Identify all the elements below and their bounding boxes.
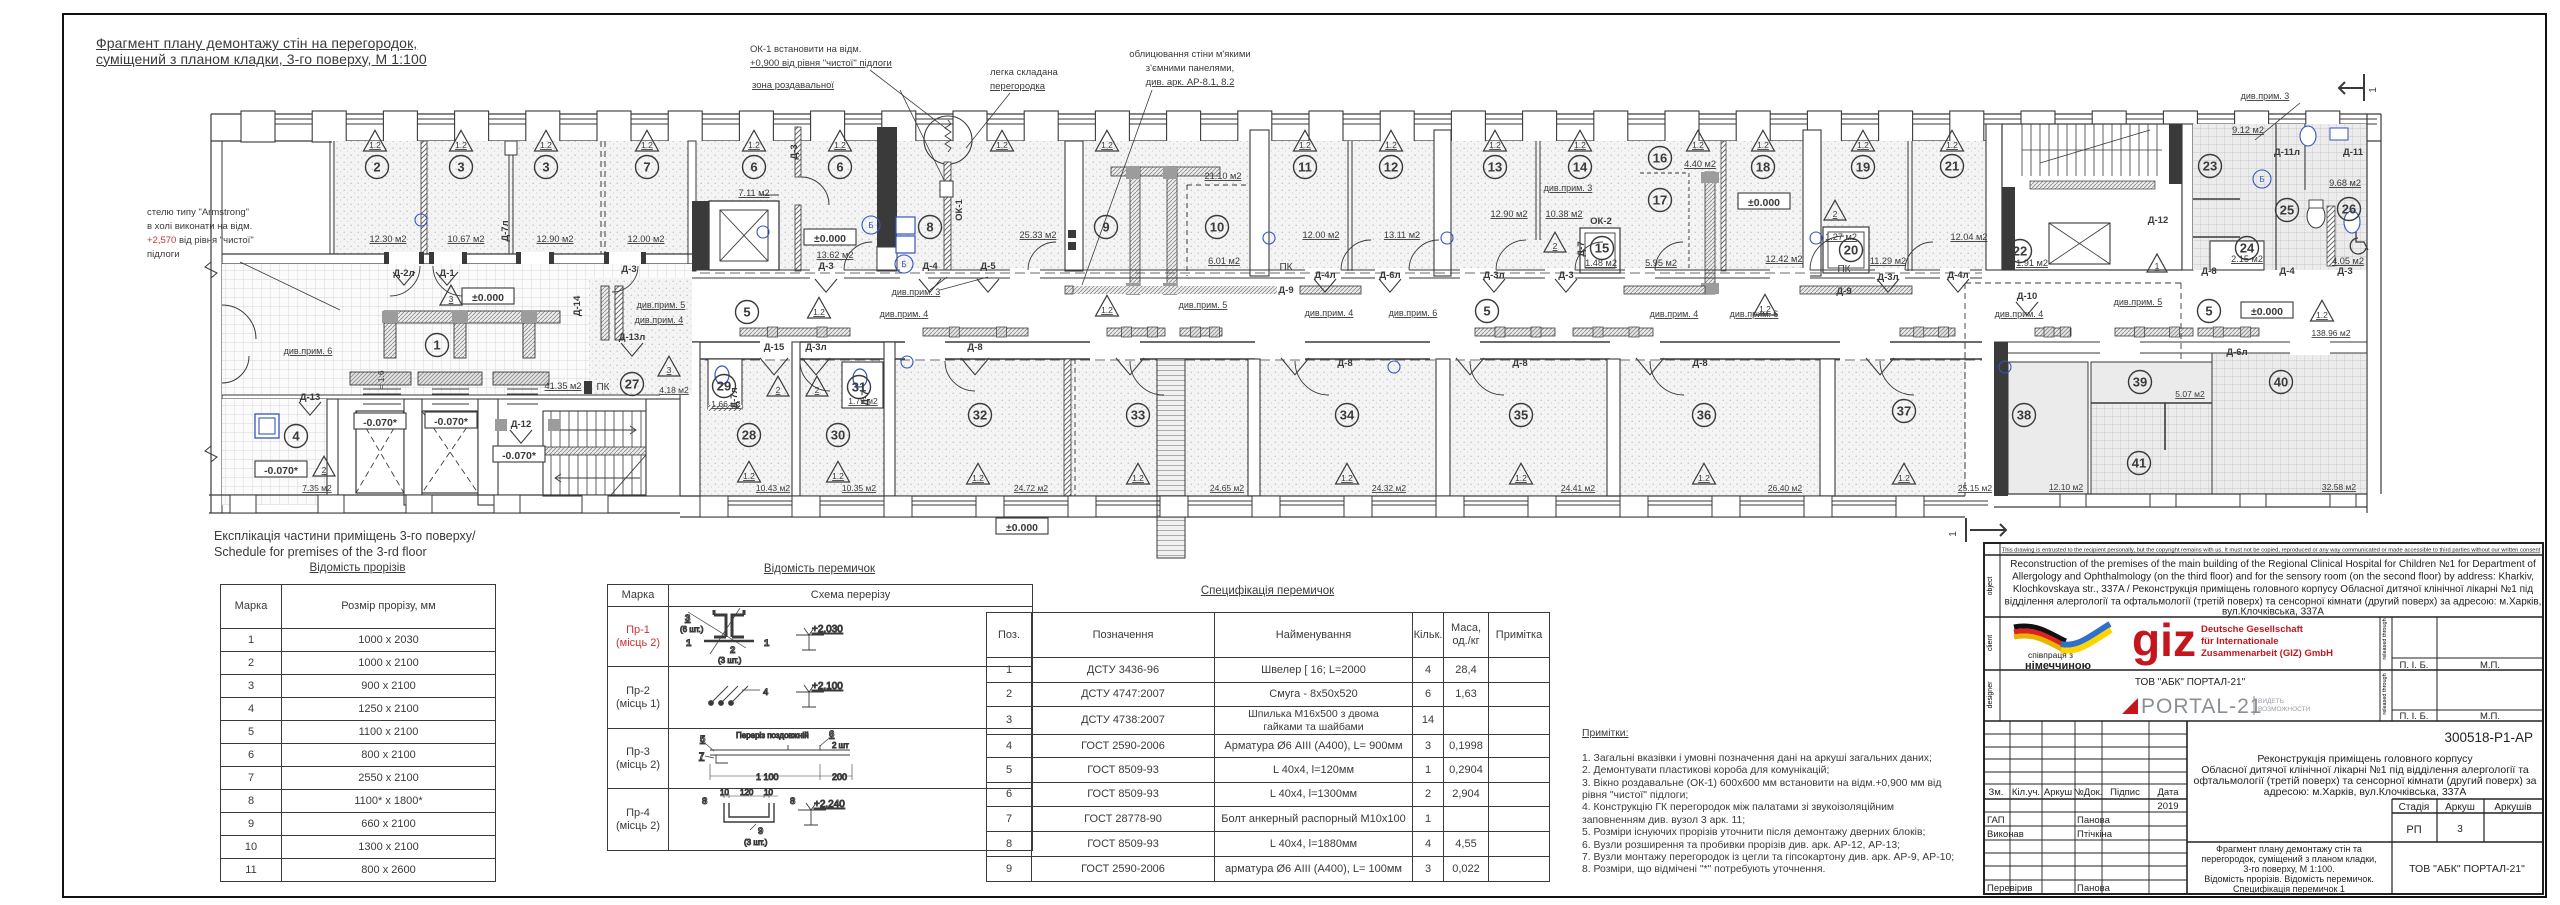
svg-text:2: 2: [1833, 209, 1838, 219]
svg-text:підлоги: підлоги: [147, 249, 180, 260]
svg-text:Д-2л: Д-2л: [393, 268, 414, 279]
svg-text:= 1:6: = 1:6: [376, 370, 386, 389]
svg-text:11: 11: [1298, 160, 1312, 175]
svg-text:Перевірив: Перевірив: [1987, 883, 2032, 894]
svg-text:25.15 м2: 25.15 м2: [1958, 483, 1992, 493]
svg-text:Zusammenarbeit (GIZ) GmbH: Zusammenarbeit (GIZ) GmbH: [2201, 648, 2333, 659]
svg-text:див.прим. 5: див.прим. 5: [2114, 297, 2163, 307]
svg-text:див.прим. 6: див.прим. 6: [1389, 308, 1438, 318]
svg-text:41: 41: [2132, 456, 2146, 471]
svg-text:object: object: [1987, 577, 1994, 596]
svg-text:ТОВ "АБК" ПОРТАЛ-21": ТОВ "АБК" ПОРТАЛ-21": [2409, 863, 2525, 875]
svg-text:26: 26: [2342, 202, 2356, 217]
svg-text:П. І. Б.: П. І. Б.: [2400, 711, 2429, 722]
svg-text:client: client: [1987, 635, 1994, 651]
svg-text:9: 9: [1102, 220, 1109, 235]
svg-text:Д-7л: Д-7л: [500, 220, 511, 241]
svg-text:12.90 м2: 12.90 м2: [537, 234, 574, 244]
svg-text:1.2: 1.2: [455, 140, 467, 150]
svg-text:23: 23: [2203, 159, 2217, 174]
svg-text:див.прим. 3: див.прим. 3: [892, 287, 941, 297]
svg-text:5: 5: [2205, 304, 2212, 319]
svg-text:1.2: 1.2: [1946, 140, 1958, 150]
svg-text:ПК: ПК: [1837, 264, 1850, 275]
svg-text:released through: released through: [2382, 618, 2388, 659]
svg-text:в холі виконати на відм.: в холі виконати на відм.: [147, 221, 252, 232]
svg-text:6: 6: [836, 160, 843, 175]
svg-text:Д-4л: Д-4л: [1947, 270, 1968, 281]
svg-text:1.2: 1.2: [641, 140, 653, 150]
svg-text:5: 5: [743, 305, 750, 320]
svg-text:Стадія: Стадія: [2399, 802, 2430, 813]
svg-text:18: 18: [1756, 160, 1770, 175]
svg-text:див.прим. 4: див.прим. 4: [1305, 308, 1354, 318]
svg-text:6.01 м2: 6.01 м2: [1208, 256, 1240, 266]
svg-text:Д-9: Д-9: [1278, 285, 1293, 296]
svg-text:2: 2: [373, 160, 380, 175]
svg-text:12: 12: [1384, 160, 1398, 175]
svg-text:1.2: 1.2: [1101, 305, 1113, 315]
svg-text:6: 6: [829, 729, 834, 740]
svg-text:8: 8: [790, 796, 795, 807]
svg-text:Д-8: Д-8: [967, 342, 982, 353]
svg-text:Д-3л: Д-3л: [1483, 270, 1504, 281]
svg-text:ВОЗМОЖНОСТИ: ВОЗМОЖНОСТИ: [2258, 706, 2311, 713]
svg-text:Д-4: Д-4: [2279, 266, 2295, 277]
svg-text:3: 3: [457, 160, 464, 175]
svg-text:адресою: м.Харків, вул.Клочків: адресою: м.Харків, вул.Клочківська, 337А: [2264, 786, 2467, 798]
svg-text:ПК: ПК: [1279, 262, 1292, 273]
svg-text:див.прим. 3: див.прим. 3: [2241, 91, 2290, 101]
svg-text:1: 1: [1948, 531, 1959, 537]
svg-text:1: 1: [764, 638, 770, 649]
svg-text:1: 1: [433, 338, 440, 353]
svg-text:±0.000: ±0.000: [1748, 197, 1780, 209]
svg-text:27: 27: [625, 377, 639, 392]
svg-text:Б: Б: [901, 260, 906, 269]
svg-text:32.58 м2: 32.58 м2: [2322, 482, 2356, 492]
svg-text:33: 33: [1131, 408, 1145, 423]
svg-text:(3 шт.): (3 шт.): [718, 656, 742, 665]
svg-text:Д-4: Д-4: [922, 261, 938, 272]
svg-text:1.2: 1.2: [834, 140, 846, 150]
svg-text:released through: released through: [2382, 673, 2388, 714]
svg-text:-0.070*: -0.070*: [264, 465, 299, 477]
svg-text:Д-13: Д-13: [300, 392, 321, 403]
svg-text:Д-10: Д-10: [2017, 291, 2038, 302]
svg-text:Д-8: Д-8: [2201, 266, 2216, 277]
svg-text:ГАП: ГАП: [1987, 815, 2005, 826]
svg-text:24.32 м2: 24.32 м2: [1372, 483, 1406, 493]
svg-text:-0.070*: -0.070*: [502, 450, 537, 462]
svg-text:10.38 м2: 10.38 м2: [1546, 209, 1583, 219]
svg-text:14: 14: [1573, 160, 1588, 175]
svg-text:Д-11л: Д-11л: [2274, 147, 2300, 158]
svg-text:12.00 м2: 12.00 м2: [1303, 230, 1340, 240]
svg-text:Специфікація перемичок 1: Специфікація перемичок 1: [2233, 884, 2345, 894]
svg-text:1: 1: [2155, 261, 2160, 271]
svg-text:26.40 м2: 26.40 м2: [1768, 483, 1802, 493]
svg-text:7: 7: [643, 160, 650, 175]
svg-text:40: 40: [2274, 375, 2288, 390]
svg-text:Д-8: Д-8: [1512, 358, 1527, 369]
svg-text:див.прим. 5: див.прим. 5: [1179, 300, 1228, 310]
svg-text:15: 15: [1595, 241, 1609, 256]
svg-text:1.2: 1.2: [972, 473, 984, 483]
svg-text:12.90 м2: 12.90 м2: [1491, 209, 1528, 219]
svg-text:1.2: 1.2: [1101, 140, 1113, 150]
svg-text:5.07 м2: 5.07 м2: [2175, 389, 2205, 399]
svg-text:für Internationale: für Internationale: [2201, 636, 2279, 647]
svg-text:Аркуш: Аркуш: [2445, 802, 2475, 813]
svg-text:див.прим. 3: див.прим. 3: [1544, 183, 1593, 193]
svg-text:Д-8: Д-8: [1692, 358, 1707, 369]
svg-text:4: 4: [763, 687, 768, 698]
svg-text:перегородок, суміщений з плано: перегородок, суміщений з планом кладки,: [2201, 854, 2376, 864]
svg-text:+2,030: +2,030: [812, 624, 843, 635]
svg-text:300518-Р1-АР: 300518-Р1-АР: [2444, 730, 2533, 745]
svg-text:Д-7л: Д-7л: [729, 387, 740, 408]
svg-text:1.2: 1.2: [743, 471, 755, 481]
svg-text:34: 34: [1340, 408, 1355, 423]
svg-text:Зм.: Зм.: [1989, 787, 2004, 798]
svg-text:2 шт: 2 шт: [832, 741, 849, 750]
svg-text:4: 4: [292, 429, 300, 444]
svg-text:24.72 м2: 24.72 м2: [1014, 483, 1048, 493]
svg-text:Б: Б: [868, 221, 873, 230]
svg-text:21.10 м2: 21.10 м2: [1205, 171, 1242, 181]
svg-text:10: 10: [764, 788, 773, 797]
svg-text:Виконав: Виконав: [1987, 829, 2024, 840]
svg-text:П. І. Б.: П. І. Б.: [2400, 660, 2429, 671]
svg-text:Д-3: Д-3: [1558, 270, 1573, 281]
svg-text:Панова: Панова: [2077, 815, 2111, 826]
svg-text:3: 3: [2457, 824, 2463, 835]
svg-text:Переріз поздовжній: Переріз поздовжній: [736, 731, 809, 740]
svg-text:Д-3л: Д-3л: [1877, 272, 1898, 283]
svg-text:200: 200: [832, 772, 847, 782]
svg-text:8: 8: [702, 796, 707, 807]
svg-text:Д-11: Д-11: [2343, 147, 2364, 158]
svg-text:12.10 м2: 12.10 м2: [2049, 482, 2083, 492]
svg-text:4.05 м2: 4.05 м2: [2332, 256, 2364, 266]
svg-text:24.41 м2: 24.41 м2: [1561, 483, 1595, 493]
svg-text:див.прим. 6: див.прим. 6: [284, 346, 333, 356]
svg-text:9.68 м2: 9.68 м2: [2329, 178, 2361, 188]
svg-text:Д-7: Д-7: [1576, 241, 1587, 256]
svg-text:+2,100: +2,100: [812, 681, 843, 692]
svg-text:співпраця з: співпраця з: [2028, 650, 2073, 660]
svg-text:Д-8: Д-8: [1337, 358, 1352, 369]
svg-text:2: 2: [322, 465, 327, 475]
svg-text:38: 38: [2017, 408, 2031, 423]
svg-text:10.67 м2: 10.67 м2: [448, 234, 485, 244]
svg-text:10.43 м2: 10.43 м2: [756, 483, 790, 493]
svg-text:7: 7: [699, 751, 704, 762]
svg-text:ВИДЕТЬ: ВИДЕТЬ: [2258, 698, 2284, 705]
svg-text:8: 8: [926, 220, 933, 235]
svg-text:17: 17: [1653, 193, 1667, 208]
svg-text:1.91 м2: 1.91 м2: [2016, 258, 2048, 268]
svg-text:див.прим. 4: див.прим. 4: [635, 315, 684, 325]
svg-text:±0.000: ±0.000: [1006, 522, 1038, 534]
svg-text:Д-12: Д-12: [2148, 215, 2169, 226]
svg-text:12.04 м2: 12.04 м2: [1951, 232, 1988, 242]
svg-text:7.11 м2: 7.11 м2: [738, 188, 769, 198]
svg-text:30: 30: [831, 428, 845, 443]
svg-text:-0.070*: -0.070*: [434, 416, 469, 428]
svg-text:Панова: Панова: [2077, 883, 2111, 894]
svg-text:5.95 м2: 5.95 м2: [1645, 258, 1677, 268]
svg-text:1.2: 1.2: [1299, 140, 1311, 150]
svg-text:11.29 м2: 11.29 м2: [1870, 256, 1906, 266]
svg-text:Deutsche Gesellschaft: Deutsche Gesellschaft: [2201, 624, 2304, 635]
svg-text:Д-15: Д-15: [764, 342, 785, 353]
svg-text:4.40 м2: 4.40 м2: [1684, 159, 1716, 169]
svg-text:(3 шт.): (3 шт.): [744, 838, 768, 847]
svg-text:12.00 м2: 12.00 м2: [628, 234, 665, 244]
svg-text:39: 39: [2133, 375, 2147, 390]
svg-text:Д-1: Д-1: [439, 268, 455, 279]
svg-text:1.2: 1.2: [2316, 310, 2328, 320]
svg-text:1.2: 1.2: [1757, 140, 1769, 150]
svg-text:1.2: 1.2: [1489, 140, 1501, 150]
svg-text:7.35 м2: 7.35 м2: [302, 483, 332, 493]
svg-text:Аркуш: Аркуш: [2044, 787, 2072, 798]
svg-text:9.12 м2: 9.12 м2: [2232, 125, 2264, 135]
svg-text:1.2: 1.2: [1692, 140, 1704, 150]
svg-text:+0,900 від рівня "чистої" підл: +0,900 від рівня "чистої" підлоги: [750, 58, 892, 69]
svg-text:стелю типу "Armstrong": стелю типу "Armstrong": [147, 207, 249, 218]
svg-text:138.96 м2: 138.96 м2: [2312, 328, 2351, 338]
svg-text:3-го поверху, М 1:100.: 3-го поверху, М 1:100.: [2243, 864, 2334, 874]
svg-text:Д-12: Д-12: [511, 419, 532, 430]
svg-text:1 100: 1 100: [756, 772, 779, 782]
svg-text:М.П.: М.П.: [2480, 711, 2500, 722]
svg-text:1: 1: [2368, 87, 2379, 93]
svg-text:1.2: 1.2: [1857, 140, 1869, 150]
svg-text:облицювання стіни м'якими: облицювання стіни м'якими: [1129, 49, 1250, 60]
svg-text:Д-3: Д-3: [818, 261, 833, 272]
svg-text:±0.000: ±0.000: [472, 292, 504, 304]
svg-text:1.2: 1.2: [1515, 473, 1527, 483]
svg-text:М.П.: М.П.: [2480, 660, 2500, 671]
svg-text:25.33 м2: 25.33 м2: [1020, 230, 1057, 240]
svg-text:див.прим. 4: див.прим. 4: [1995, 309, 2044, 319]
svg-text:вул.Клочківська, 337А: вул.Клочківська, 337А: [2222, 607, 2324, 618]
svg-text:1.2: 1.2: [369, 140, 381, 150]
svg-text:10: 10: [1210, 220, 1224, 235]
svg-text:3: 3: [667, 365, 672, 375]
svg-text:120: 120: [740, 788, 754, 797]
svg-text:Відомість прорізів. Відомість: Відомість прорізів. Відомість перемичок.: [2204, 874, 2374, 884]
svg-text:3: 3: [542, 160, 549, 175]
svg-text:див.прим. 4: див.прим. 4: [880, 309, 929, 319]
svg-text:Д-14: Д-14: [572, 295, 583, 316]
svg-text:Дата: Дата: [2157, 787, 2179, 798]
svg-text:Д-6л: Д-6л: [1379, 270, 1400, 281]
svg-text:з'ємними панелями,: з'ємними панелями,: [1146, 63, 1234, 74]
svg-text:1: 1: [686, 638, 692, 649]
svg-text:РП: РП: [2406, 824, 2421, 836]
svg-text:ОК-1 встановити на відм.: ОК-1 встановити на відм.: [750, 44, 861, 55]
svg-text:2: 2: [1553, 241, 1558, 251]
svg-text:3: 3: [449, 294, 454, 304]
svg-text:ОК-2: ОК-2: [1590, 216, 1612, 227]
svg-text:2: 2: [815, 385, 820, 395]
svg-text:25: 25: [2280, 203, 2294, 218]
svg-text:Reconstruction of the premises: Reconstruction of the premises of the ma…: [2010, 559, 2536, 570]
svg-text:(6 шт.): (6 шт.): [680, 625, 704, 634]
svg-text:ТОВ "АБК" ПОРТАЛ-21": ТОВ "АБК" ПОРТАЛ-21": [2135, 677, 2246, 688]
svg-text:1.2: 1.2: [996, 140, 1008, 150]
svg-text:Д-9: Д-9: [1836, 286, 1851, 297]
svg-text:1.2: 1.2: [1341, 473, 1353, 483]
svg-text:Д-3л: Д-3л: [805, 342, 826, 353]
svg-text:2: 2: [776, 385, 781, 395]
svg-text:легка складана: легка складана: [990, 67, 1058, 78]
svg-text:див.прим. 5: див.прим. 5: [637, 300, 686, 310]
svg-text:Підпис: Підпис: [2110, 787, 2140, 798]
svg-text:перегородка: перегородка: [990, 81, 1046, 92]
svg-text:Кіл.уч.: Кіл.уч.: [2012, 787, 2040, 798]
svg-text:±0.000: ±0.000: [814, 233, 846, 245]
svg-text:28: 28: [742, 428, 756, 443]
svg-text:1.2: 1.2: [1385, 140, 1397, 150]
svg-text:3: 3: [685, 613, 690, 624]
svg-text:35: 35: [1514, 408, 1528, 423]
svg-text:див.прим. 4: див.прим. 4: [1650, 309, 1699, 319]
svg-text:1.48 м2: 1.48 м2: [1585, 258, 1617, 268]
svg-text:див. арк. АР-8.1, 8.2: див. арк. АР-8.1, 8.2: [1146, 77, 1235, 88]
svg-text:німеччиною: німеччиною: [2025, 660, 2091, 672]
svg-text:2019: 2019: [2157, 801, 2178, 812]
svg-text:designer: designer: [1987, 681, 1994, 709]
svg-text:див.прим. 6: див.прим. 6: [1730, 309, 1779, 319]
svg-text:PORTAL-21: PORTAL-21: [2141, 695, 2262, 718]
svg-text:16: 16: [1653, 151, 1667, 166]
svg-text:ПК: ПК: [596, 382, 609, 393]
svg-text:41.35 м2: 41.35 м2: [545, 381, 582, 391]
svg-text:19: 19: [1856, 160, 1870, 175]
svg-text:37: 37: [1897, 404, 1911, 419]
svg-text:+2,570 від рівня "чистої": +2,570 від рівня "чистої": [147, 235, 254, 246]
svg-text:13.11 м2: 13.11 м2: [1384, 230, 1420, 240]
svg-text:Д-3: Д-3: [2337, 266, 2352, 277]
svg-text:1.2: 1.2: [813, 307, 825, 317]
svg-text:24.65 м2: 24.65 м2: [1210, 483, 1244, 493]
svg-text:1.2: 1.2: [1574, 140, 1586, 150]
svg-text:2.15 м2: 2.15 м2: [2231, 254, 2263, 264]
svg-text:21: 21: [1945, 159, 1959, 174]
svg-text:№Док.: №Док.: [2074, 787, 2103, 798]
svg-text:Д-5: Д-5: [980, 261, 996, 272]
svg-text:5: 5: [1483, 304, 1490, 319]
svg-text:This drawing is entrusted to t: This drawing is entrusted to the recipie…: [2002, 548, 2541, 554]
svg-text:9: 9: [758, 826, 763, 837]
svg-text:4.18 м2: 4.18 м2: [659, 385, 689, 395]
svg-text:5: 5: [700, 734, 706, 745]
svg-text:Д-3: Д-3: [789, 144, 800, 159]
svg-text:36: 36: [1697, 408, 1711, 423]
svg-text:1.2: 1.2: [1898, 473, 1910, 483]
svg-text:1.2: 1.2: [748, 140, 760, 150]
svg-text:Allergology and Ophthalmology: Allergology and Ophthalmology (on the th…: [2012, 572, 2534, 583]
svg-text:1.2: 1.2: [1698, 473, 1710, 483]
svg-text:10.35 м2: 10.35 м2: [842, 483, 876, 493]
svg-text:+2,240: +2,240: [814, 799, 845, 810]
svg-text:13: 13: [1488, 160, 1502, 175]
svg-text:Д-6л: Д-6л: [2226, 347, 2247, 358]
svg-text:±0.000: ±0.000: [2251, 306, 2283, 318]
svg-text:10: 10: [720, 788, 729, 797]
svg-text:Фрагмент плану демонтажу стін: Фрагмент плану демонтажу стін та: [2216, 844, 2362, 854]
svg-text:-0.070*: -0.070*: [363, 417, 398, 429]
svg-text:Д-7: Д-7: [860, 390, 871, 405]
svg-text:1.2: 1.2: [1132, 473, 1144, 483]
svg-text:ОК-1: ОК-1: [954, 198, 965, 220]
svg-text:13.62 м2: 13.62 м2: [817, 250, 854, 260]
svg-text:Д-13л: Д-13л: [619, 332, 646, 343]
svg-text:зона роздавальної: зона роздавальної: [752, 80, 834, 91]
svg-text:20: 20: [1844, 243, 1858, 258]
svg-text:Птічкіна: Птічкіна: [2077, 829, 2113, 840]
svg-text:giz: giz: [2132, 614, 2196, 666]
svg-text:1.27 м2: 1.27 м2: [1825, 232, 1857, 242]
svg-text:22: 22: [2013, 244, 2027, 259]
svg-text:2: 2: [730, 645, 735, 656]
svg-text:12.42 м2: 12.42 м2: [1766, 254, 1803, 264]
svg-text:32: 32: [973, 408, 987, 423]
svg-text:6: 6: [750, 160, 757, 175]
svg-text:Д-4л: Д-4л: [1314, 270, 1335, 281]
svg-text:Д-3: Д-3: [621, 264, 636, 275]
svg-text:Б: Б: [2259, 175, 2264, 184]
svg-text:1.2: 1.2: [540, 140, 552, 150]
svg-text:1.2: 1.2: [832, 471, 844, 481]
svg-text:Klochkovskaya str., 337A / Рек: Klochkovskaya str., 337A / Реконструкція…: [2013, 583, 2533, 595]
svg-text:12.30 м2: 12.30 м2: [370, 234, 407, 244]
svg-text:Аркушів: Аркушів: [2494, 802, 2531, 813]
